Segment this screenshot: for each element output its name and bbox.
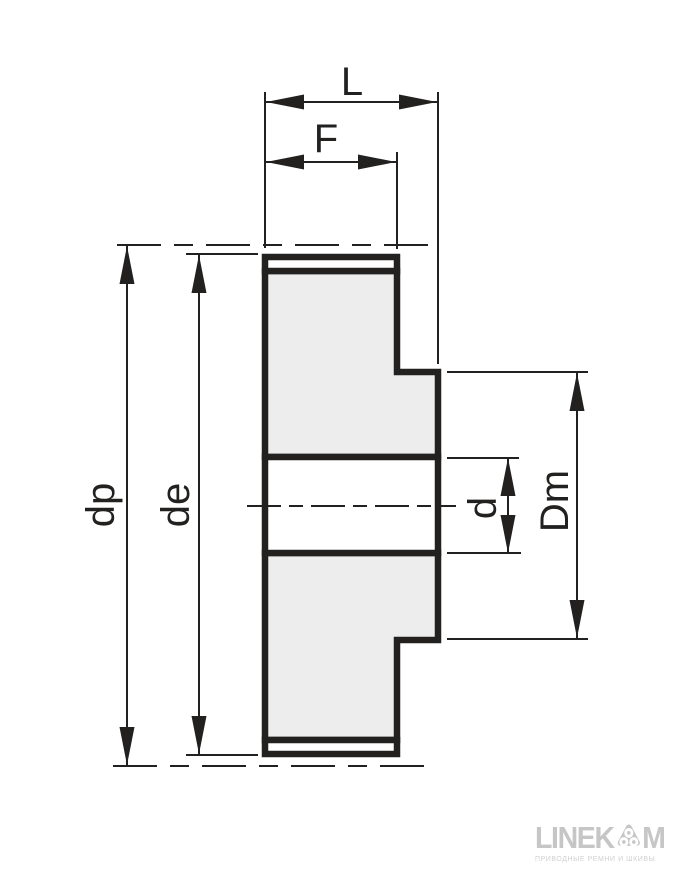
pulley-logo-icon bbox=[616, 823, 642, 851]
arrow-de-bottom bbox=[192, 716, 207, 754]
arrow-Dm-top bbox=[570, 373, 585, 411]
arrow-F-right bbox=[358, 155, 396, 170]
pulley-cross-section-drawing: L F dp de d Dm bbox=[0, 0, 681, 874]
arrow-d-bottom bbox=[501, 515, 516, 553]
brand-tagline: ПРИВОДНЫЕ РЕМНИ И ШКИВЫ bbox=[535, 856, 676, 863]
label-face-width-F: F bbox=[314, 117, 338, 161]
brand-text-post: M bbox=[642, 822, 664, 853]
label-bore-diameter-d: d bbox=[461, 497, 505, 519]
label-pitch-diameter-dp: dp bbox=[79, 483, 123, 528]
arrow-de-top bbox=[192, 255, 207, 293]
brand-logotype: LINEK M bbox=[535, 822, 665, 853]
arrow-L-right bbox=[399, 95, 437, 110]
drawing-canvas: L F dp de d Dm LINEK M ПРИВОДНЫЕ РЕМНИ И… bbox=[0, 0, 681, 874]
arrow-dp-top bbox=[120, 246, 135, 284]
brand-logo: LINEK M ПРИВОДНЫЕ РЕМНИ И ШКИВЫ bbox=[535, 822, 676, 863]
arrow-Dm-bottom bbox=[570, 600, 585, 638]
brand-text-pre: LINEK bbox=[535, 822, 614, 853]
arrow-F-left bbox=[266, 155, 304, 170]
pulley-lower-half bbox=[265, 553, 438, 740]
arrow-d-top bbox=[501, 458, 516, 496]
bottom-flange bbox=[265, 740, 397, 754]
pulley-upper-half bbox=[265, 271, 438, 457]
label-overall-width-L: L bbox=[341, 60, 363, 104]
label-outside-diameter-de: de bbox=[154, 483, 198, 528]
top-flange bbox=[265, 257, 397, 271]
label-hub-diameter-Dm: Dm bbox=[533, 470, 577, 532]
arrow-dp-bottom bbox=[120, 727, 135, 765]
arrow-L-left bbox=[266, 95, 304, 110]
